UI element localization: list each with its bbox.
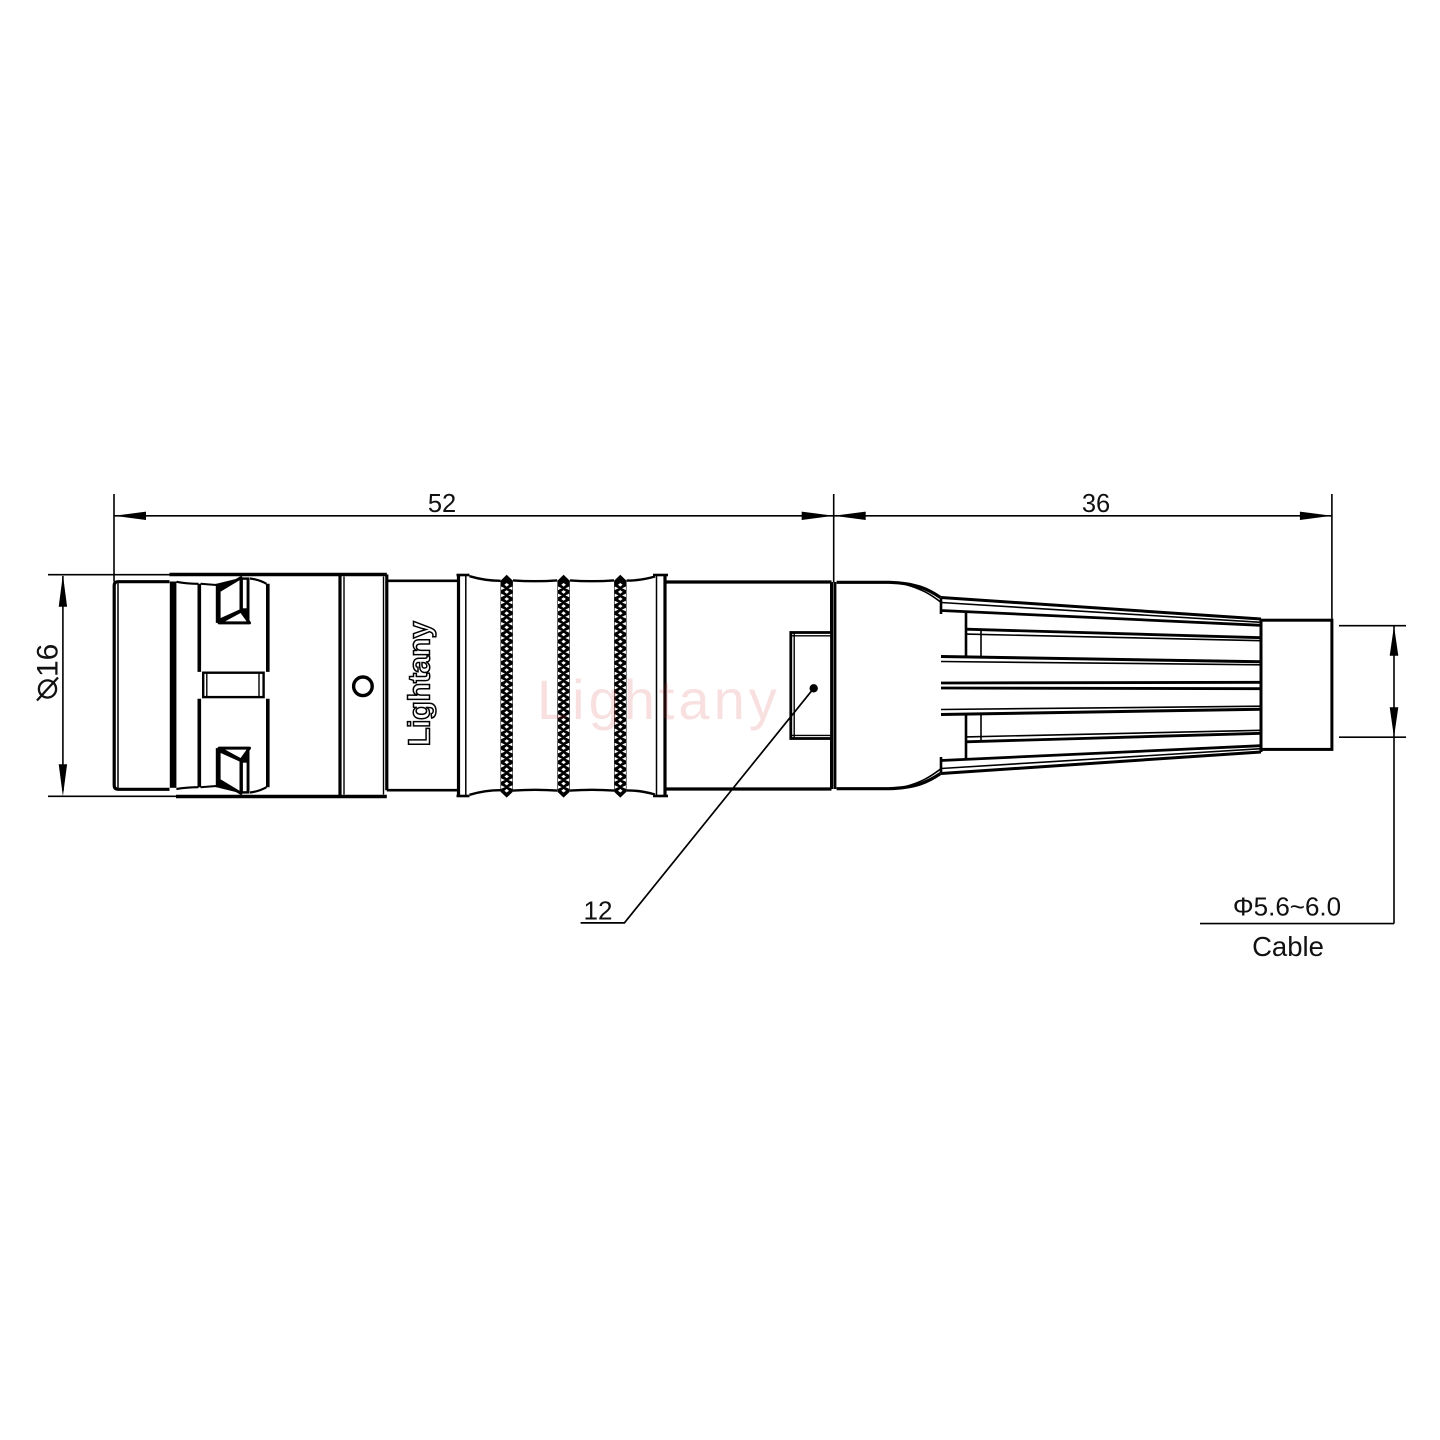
svg-text:Lightany: Lightany xyxy=(537,668,781,731)
svg-text:16: 16 xyxy=(32,644,65,677)
svg-text:36: 36 xyxy=(1082,490,1110,518)
svg-text:Lightany: Lightany xyxy=(402,620,437,746)
svg-text:12: 12 xyxy=(584,896,613,926)
svg-text:52: 52 xyxy=(428,490,456,518)
svg-text:Cable: Cable xyxy=(1252,931,1324,962)
svg-text:Φ5.6~6.0: Φ5.6~6.0 xyxy=(1233,892,1341,922)
